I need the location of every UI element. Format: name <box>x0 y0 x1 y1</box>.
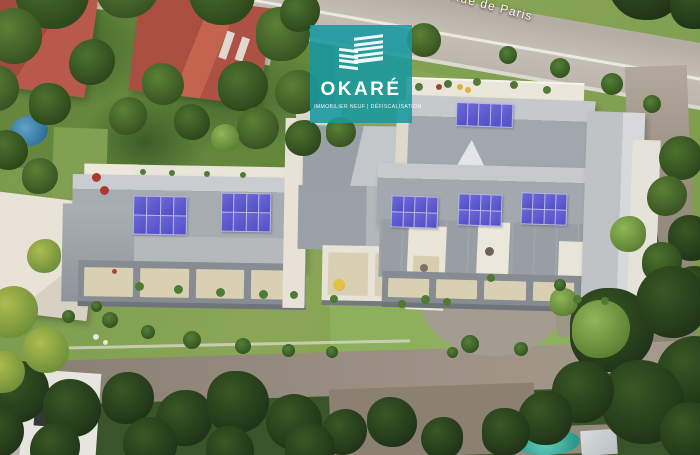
garden-object <box>103 340 108 345</box>
garden-object <box>93 334 99 340</box>
aerial-map-view: OKARÉ IMMOBILIER NEUF | DÉFISCALISATION … <box>0 0 700 455</box>
red-umbrella <box>92 173 101 182</box>
terrace-shrub <box>421 295 430 304</box>
walkway-plant <box>169 170 175 176</box>
walkway-plant <box>240 172 246 178</box>
roof-plant <box>473 78 481 86</box>
brand-name: OKARÉ <box>310 79 412 101</box>
red-umbrella <box>100 186 109 195</box>
rooftop-vent <box>112 269 117 274</box>
logo-bar-stack <box>339 48 358 73</box>
terrace-shrub <box>573 295 582 304</box>
terrace-chair <box>457 84 463 90</box>
terrace-shrub <box>601 297 609 305</box>
terrace-shrub <box>135 282 144 291</box>
terrace-shrub <box>443 298 451 306</box>
terrace-shrub <box>216 288 225 297</box>
terrace-shrub <box>259 290 268 299</box>
plant-pot <box>436 84 442 90</box>
brand-logo-overlay: OKARÉ IMMOBILIER NEUF | DÉFISCALISATION <box>310 25 412 123</box>
terrace-shrub <box>398 300 406 308</box>
yellow-umbrella <box>333 279 345 291</box>
terrace-shrub <box>487 274 495 282</box>
roof-plant <box>510 81 518 89</box>
stacked-building-icon <box>339 36 383 78</box>
terrace-shrub <box>174 285 183 294</box>
walkway-plant <box>140 169 146 175</box>
patio-furniture <box>420 264 428 272</box>
roof-plant <box>415 83 423 91</box>
walkway-plant <box>204 171 210 177</box>
roof-plant <box>543 86 551 94</box>
terrace-shrub <box>290 291 298 299</box>
brand-tagline: IMMOBILIER NEUF | DÉFISCALISATION <box>314 104 408 110</box>
roof-plant <box>444 80 452 88</box>
terrace-chair <box>465 87 471 93</box>
patio-furniture <box>485 247 494 256</box>
logo-bar-stack <box>354 34 383 65</box>
terrace-shrub <box>330 295 338 303</box>
